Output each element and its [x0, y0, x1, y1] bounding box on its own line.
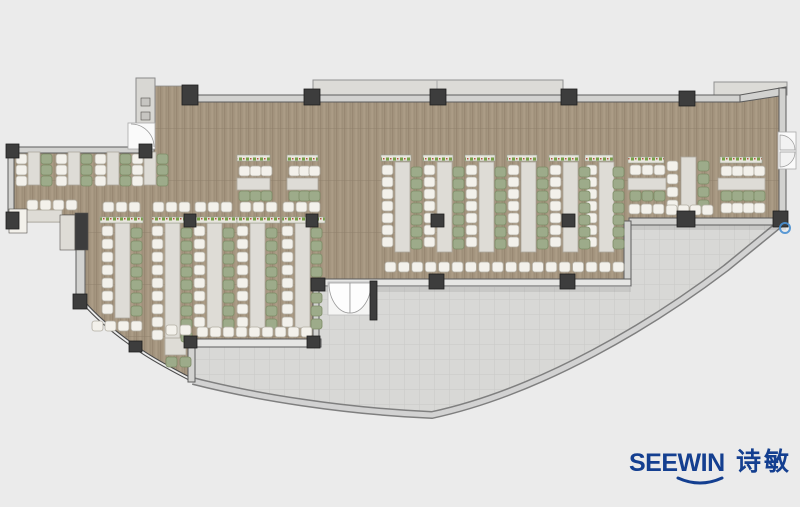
chair — [579, 167, 590, 177]
dining-table — [681, 157, 696, 207]
brand-wordmark: SEEWIN — [629, 451, 725, 476]
chair — [732, 166, 743, 176]
chair — [453, 227, 464, 237]
chair — [223, 327, 234, 337]
chair — [382, 201, 393, 211]
chair — [152, 252, 163, 262]
chair — [262, 327, 273, 337]
chair — [579, 215, 590, 225]
chair — [56, 154, 67, 164]
chair — [129, 202, 140, 212]
table-planter — [628, 157, 664, 163]
chair — [453, 167, 464, 177]
chair — [667, 174, 678, 184]
chair — [411, 239, 422, 249]
chair — [546, 262, 557, 272]
chair — [698, 161, 709, 171]
chair — [309, 202, 320, 212]
chair — [223, 267, 234, 277]
chair — [237, 265, 248, 275]
chair — [102, 265, 113, 275]
chair — [250, 166, 261, 176]
chair — [116, 202, 127, 212]
chair — [311, 241, 322, 251]
dining-table — [207, 223, 222, 328]
chair — [210, 327, 221, 337]
chair — [537, 167, 548, 177]
chair — [223, 293, 234, 303]
chair — [181, 254, 192, 264]
chair — [266, 267, 277, 277]
chair — [152, 330, 163, 340]
chair — [613, 191, 624, 201]
chair — [180, 357, 191, 367]
chair — [495, 167, 506, 177]
chair — [266, 202, 277, 212]
chair — [195, 202, 206, 212]
chair — [398, 262, 409, 272]
chair — [698, 174, 709, 184]
chair — [613, 215, 624, 225]
chair — [743, 203, 754, 213]
chair — [537, 191, 548, 201]
chair — [56, 176, 67, 186]
chair — [237, 304, 248, 314]
structural-column — [430, 89, 446, 105]
chair — [152, 291, 163, 301]
dining-table — [628, 178, 666, 190]
chair — [495, 179, 506, 189]
chair — [237, 291, 248, 301]
chair — [698, 187, 709, 197]
dining-table — [68, 152, 80, 185]
table-planter — [282, 217, 325, 223]
chair — [466, 237, 477, 247]
table-planter — [287, 155, 318, 161]
chair — [152, 278, 163, 288]
chair — [754, 166, 765, 176]
chair — [466, 201, 477, 211]
structural-column — [6, 144, 19, 158]
chair — [102, 291, 113, 301]
chair — [667, 187, 678, 197]
chair — [654, 191, 665, 201]
chair — [439, 262, 450, 272]
chair — [181, 241, 192, 251]
chair — [573, 262, 584, 272]
chair — [508, 189, 519, 199]
chair — [131, 293, 142, 303]
chair — [743, 191, 754, 201]
chair — [508, 225, 519, 235]
dining-table — [115, 223, 130, 318]
chair — [732, 191, 743, 201]
dining-table — [295, 223, 310, 328]
chair — [102, 239, 113, 249]
chair — [157, 165, 168, 175]
chair — [157, 176, 168, 186]
chair — [754, 191, 765, 201]
chair — [550, 189, 561, 199]
chair — [537, 203, 548, 213]
chair — [550, 237, 561, 247]
structural-column — [562, 214, 575, 227]
chair — [743, 166, 754, 176]
chair — [508, 201, 519, 211]
chair — [519, 262, 530, 272]
chair — [266, 241, 277, 251]
chair — [495, 227, 506, 237]
chair — [120, 176, 131, 186]
chair — [424, 201, 435, 211]
chair — [181, 228, 192, 238]
chair — [152, 265, 163, 275]
chair — [495, 215, 506, 225]
chair — [550, 165, 561, 175]
floor-plan-page: { "page": {"background": "#ebebeb", "wid… — [0, 0, 800, 507]
structural-column — [307, 336, 320, 348]
chair — [16, 165, 27, 175]
chair — [425, 262, 436, 272]
structural-column — [311, 278, 325, 291]
chair — [424, 165, 435, 175]
dining-table — [237, 178, 270, 190]
chair — [66, 200, 77, 210]
chair — [102, 278, 113, 288]
chair — [197, 327, 208, 337]
chair — [629, 204, 640, 214]
floor-plan-drawing — [0, 0, 800, 507]
chair — [131, 280, 142, 290]
chair — [412, 262, 423, 272]
chair — [266, 293, 277, 303]
chair — [296, 202, 307, 212]
table-planter — [585, 155, 613, 161]
chair — [180, 325, 191, 335]
chair — [194, 239, 205, 249]
chair — [537, 239, 548, 249]
chair — [237, 278, 248, 288]
chair — [131, 228, 142, 238]
table-planter — [465, 155, 495, 161]
chair — [194, 226, 205, 236]
dining-table — [599, 162, 614, 252]
chair — [194, 291, 205, 301]
chair — [132, 176, 143, 186]
chair — [237, 252, 248, 262]
chair — [385, 262, 396, 272]
chair — [56, 165, 67, 175]
chair — [181, 293, 192, 303]
chair — [95, 176, 106, 186]
chair — [102, 304, 113, 314]
chair — [131, 241, 142, 251]
chair — [311, 267, 322, 277]
chair — [382, 225, 393, 235]
chair — [194, 252, 205, 262]
chair — [721, 166, 732, 176]
chair — [283, 202, 294, 212]
dining-table — [521, 162, 536, 252]
panel-button — [141, 112, 150, 120]
storage-cabinet — [75, 213, 88, 250]
panel-button — [141, 98, 150, 106]
chair — [282, 291, 293, 301]
chair — [95, 154, 106, 164]
structural-column — [139, 144, 152, 158]
chair — [411, 191, 422, 201]
structural-column — [561, 89, 577, 105]
chair — [131, 254, 142, 264]
chair — [508, 165, 519, 175]
dining-table — [287, 178, 318, 190]
chair — [194, 317, 205, 327]
chair — [453, 215, 464, 225]
chair — [666, 205, 677, 215]
chair — [81, 154, 92, 164]
wall-rightwing-bottom — [629, 218, 787, 225]
chair — [223, 254, 234, 264]
chair — [237, 239, 248, 249]
table-planter — [423, 155, 453, 161]
chair — [181, 306, 192, 316]
chair — [239, 166, 250, 176]
chair — [266, 254, 277, 264]
chair — [282, 252, 293, 262]
chair — [299, 191, 310, 201]
chair — [41, 176, 52, 186]
chair — [309, 166, 320, 176]
chair — [282, 304, 293, 314]
table-planter — [237, 155, 270, 161]
chair — [311, 319, 322, 329]
chair — [382, 237, 393, 247]
chair — [288, 327, 299, 337]
chair — [495, 191, 506, 201]
wall-right-lower — [779, 167, 786, 218]
table-planter — [194, 217, 237, 223]
chair — [424, 177, 435, 187]
chair — [466, 165, 477, 175]
chair — [508, 237, 519, 247]
wall-a-windows — [189, 339, 321, 347]
chair — [466, 213, 477, 223]
chair — [282, 278, 293, 288]
chair — [311, 306, 322, 316]
chair — [382, 177, 393, 187]
service-counter — [60, 215, 75, 250]
chair — [27, 200, 38, 210]
chair — [641, 204, 652, 214]
chair — [532, 262, 543, 272]
chair — [613, 203, 624, 213]
chair — [16, 176, 27, 186]
dining-table — [395, 162, 410, 252]
chair — [613, 179, 624, 189]
chair — [411, 227, 422, 237]
chair — [131, 321, 142, 331]
chair — [466, 225, 477, 235]
chair — [282, 239, 293, 249]
chair — [299, 166, 310, 176]
chair — [579, 179, 590, 189]
wall-right-upper — [779, 88, 786, 135]
chair — [411, 215, 422, 225]
chair — [754, 203, 765, 213]
structural-column — [429, 274, 444, 289]
chair — [613, 227, 624, 237]
chair — [613, 262, 624, 272]
chair — [289, 191, 300, 201]
chair — [550, 213, 561, 223]
chair — [105, 321, 116, 331]
chair — [261, 191, 272, 201]
chair — [92, 321, 103, 331]
chair — [282, 317, 293, 327]
chair — [301, 327, 312, 337]
chair — [152, 226, 163, 236]
structural-column — [370, 281, 377, 320]
chair — [382, 213, 393, 223]
chair — [382, 165, 393, 175]
dining-table — [718, 178, 765, 190]
chair — [223, 306, 234, 316]
chair — [479, 262, 490, 272]
chair — [721, 191, 732, 201]
chair — [579, 191, 590, 201]
dining-table — [28, 152, 40, 185]
chair — [102, 226, 113, 236]
chair — [131, 306, 142, 316]
chair — [41, 165, 52, 175]
chair — [537, 215, 548, 225]
structural-column — [679, 91, 695, 106]
chair — [586, 262, 597, 272]
chair — [508, 177, 519, 187]
chair — [495, 203, 506, 213]
chair — [311, 228, 322, 238]
structural-column — [184, 336, 197, 348]
structural-column — [184, 214, 196, 227]
chair — [453, 191, 464, 201]
chair — [492, 262, 503, 272]
chair — [194, 278, 205, 288]
chair — [275, 327, 286, 337]
chair — [157, 154, 168, 164]
chair — [550, 201, 561, 211]
chair — [411, 167, 422, 177]
chair — [453, 239, 464, 249]
structural-column — [129, 341, 142, 352]
chair — [282, 226, 293, 236]
chair — [239, 191, 250, 201]
table-planter — [237, 217, 280, 223]
chair — [181, 280, 192, 290]
chair — [452, 262, 463, 272]
chair — [194, 265, 205, 275]
chair — [120, 165, 131, 175]
chair — [153, 202, 164, 212]
terrace-shadow — [629, 225, 786, 230]
chair — [223, 228, 234, 238]
chair — [237, 317, 248, 327]
chair — [40, 200, 51, 210]
chair — [237, 226, 248, 236]
structural-column — [431, 214, 444, 227]
chair — [266, 228, 277, 238]
chair — [102, 252, 113, 262]
dining-table — [250, 223, 265, 328]
structural-column — [677, 211, 695, 227]
chair — [250, 191, 261, 201]
chair — [261, 166, 272, 176]
chair — [465, 262, 476, 272]
dining-table — [107, 152, 119, 185]
chair — [702, 205, 713, 215]
chair — [166, 325, 177, 335]
chair — [266, 280, 277, 290]
chair — [732, 203, 743, 213]
chair — [579, 239, 590, 249]
chair — [53, 200, 64, 210]
chair — [132, 165, 143, 175]
chair — [466, 177, 477, 187]
wall-vertical-624 — [624, 221, 631, 283]
chair — [311, 254, 322, 264]
chair — [466, 189, 477, 199]
table-planter — [381, 155, 411, 161]
chair — [253, 202, 264, 212]
chair — [721, 203, 732, 213]
chair — [579, 203, 590, 213]
chair — [223, 241, 234, 251]
structural-column — [73, 294, 87, 309]
chair — [236, 327, 247, 337]
chair — [181, 267, 192, 277]
chair — [152, 317, 163, 327]
chair — [240, 202, 251, 212]
chair — [194, 304, 205, 314]
chair — [424, 189, 435, 199]
chair — [266, 306, 277, 316]
chair — [508, 213, 519, 223]
chair — [642, 165, 653, 175]
chair — [653, 204, 664, 214]
chair — [506, 262, 517, 272]
chair — [41, 154, 52, 164]
chair — [654, 165, 665, 175]
chair — [249, 327, 260, 337]
chair — [613, 167, 624, 177]
brand-smile-arc — [675, 476, 725, 486]
chair — [537, 179, 548, 189]
chair — [550, 177, 561, 187]
chair — [131, 267, 142, 277]
chair — [179, 202, 190, 212]
chair — [81, 176, 92, 186]
chair — [424, 237, 435, 247]
chair — [289, 166, 300, 176]
table-planter — [720, 157, 762, 163]
dining-table — [479, 162, 494, 252]
chair — [453, 203, 464, 213]
chair — [103, 202, 114, 212]
chair — [309, 191, 320, 201]
chair — [81, 165, 92, 175]
chair — [559, 262, 570, 272]
chair — [667, 161, 678, 171]
chair — [118, 321, 129, 331]
